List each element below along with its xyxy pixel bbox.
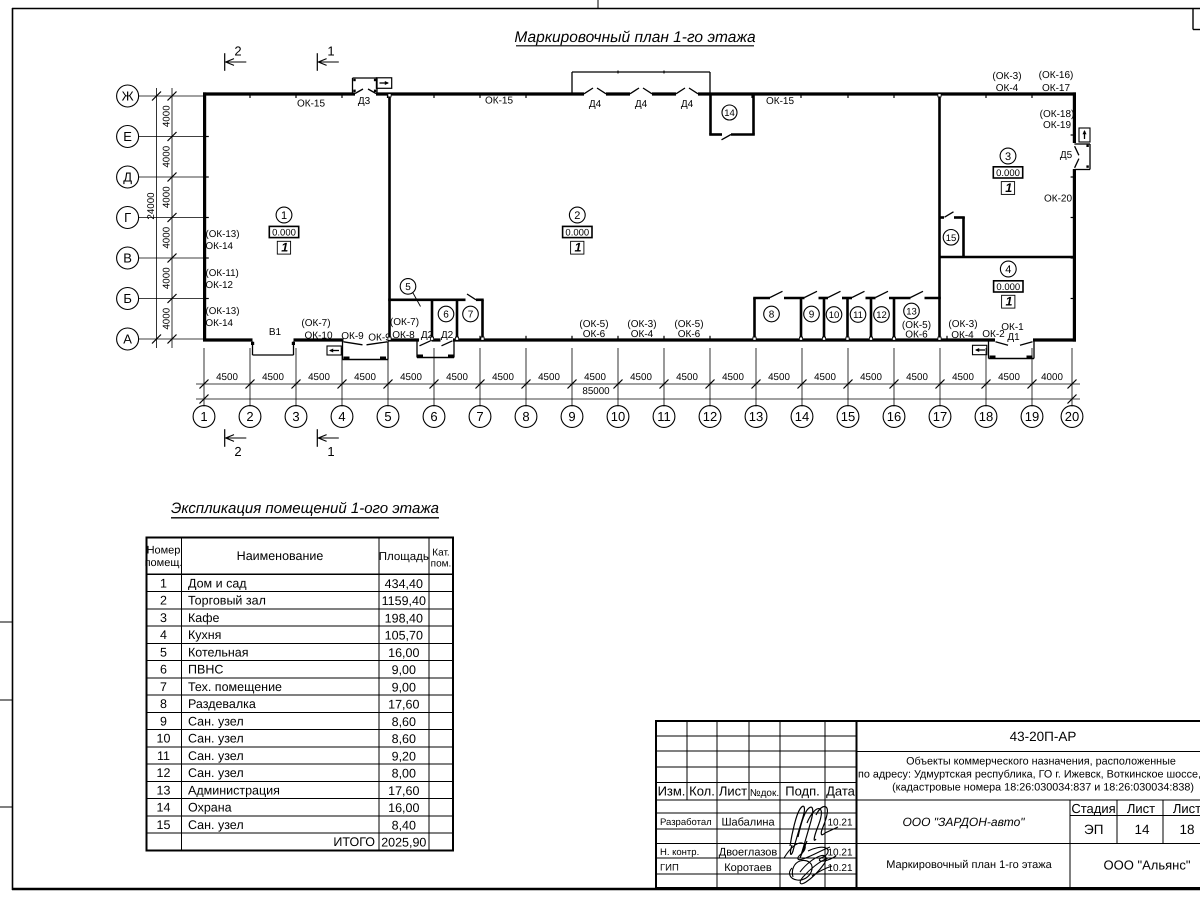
svg-text:9: 9 bbox=[568, 409, 575, 424]
svg-text:15: 15 bbox=[841, 409, 855, 424]
svg-text:7: 7 bbox=[468, 310, 474, 321]
svg-text:Сан. узел: Сан. узел bbox=[188, 732, 244, 746]
svg-text:4500: 4500 bbox=[676, 372, 698, 383]
svg-text:Тех. помещение: Тех. помещение bbox=[188, 680, 282, 694]
svg-text:В: В bbox=[123, 251, 132, 266]
svg-text:(ОК-3): (ОК-3) bbox=[992, 71, 1021, 82]
svg-text:14: 14 bbox=[157, 801, 171, 815]
svg-text:6: 6 bbox=[430, 409, 437, 424]
svg-text:помещ.: помещ. bbox=[145, 557, 183, 569]
svg-text:3: 3 bbox=[160, 611, 167, 625]
svg-text:9: 9 bbox=[160, 714, 167, 728]
svg-text:Д1: Д1 bbox=[1007, 332, 1020, 343]
svg-text:ГИП: ГИП bbox=[660, 863, 679, 874]
svg-text:Е: Е bbox=[123, 129, 132, 144]
svg-text:Изм.: Изм. bbox=[658, 784, 686, 799]
svg-text:13: 13 bbox=[157, 783, 171, 797]
svg-text:Лист: Лист bbox=[719, 784, 747, 799]
svg-text:4500: 4500 bbox=[584, 372, 606, 383]
svg-text:4500: 4500 bbox=[722, 372, 744, 383]
svg-text:ОК-6: ОК-6 bbox=[583, 329, 606, 340]
svg-text:11: 11 bbox=[657, 409, 671, 424]
svg-text:17: 17 bbox=[933, 409, 947, 424]
svg-text:9,00: 9,00 bbox=[392, 663, 416, 677]
svg-text:16,00: 16,00 bbox=[388, 801, 419, 815]
svg-text:4000: 4000 bbox=[162, 145, 173, 167]
svg-text:ОК-19: ОК-19 bbox=[1043, 120, 1071, 131]
svg-text:24000: 24000 bbox=[146, 192, 157, 220]
svg-text:ОК-4: ОК-4 bbox=[631, 329, 654, 340]
svg-text:12: 12 bbox=[157, 766, 171, 780]
svg-text:4000: 4000 bbox=[162, 226, 173, 248]
svg-text:2: 2 bbox=[234, 44, 241, 59]
svg-text:Номер: Номер bbox=[147, 545, 181, 557]
svg-text:(ОК-7): (ОК-7) bbox=[390, 317, 419, 328]
svg-text:4500: 4500 bbox=[906, 372, 928, 383]
svg-text:Б: Б bbox=[123, 291, 132, 306]
svg-text:В1: В1 bbox=[269, 327, 282, 338]
svg-text:2: 2 bbox=[234, 444, 241, 459]
svg-text:Объекты коммерческого назначен: Объекты коммерческого назначения, распол… bbox=[906, 756, 1176, 768]
svg-text:Шабалина: Шабалина bbox=[721, 817, 775, 829]
svg-text:7: 7 bbox=[160, 680, 167, 694]
svg-text:4500: 4500 bbox=[952, 372, 974, 383]
svg-text:10.21: 10.21 bbox=[827, 818, 852, 829]
svg-text:11: 11 bbox=[157, 749, 170, 763]
svg-text:Д3: Д3 bbox=[358, 96, 371, 107]
svg-text:10.21: 10.21 bbox=[827, 863, 852, 874]
svg-text:ОК-8: ОК-8 bbox=[392, 330, 415, 341]
svg-text:10: 10 bbox=[611, 409, 625, 424]
svg-text:Кухня: Кухня bbox=[188, 628, 221, 642]
svg-text:Котельная: Котельная bbox=[188, 645, 249, 659]
svg-text:18: 18 bbox=[979, 409, 993, 424]
svg-text:8,00: 8,00 bbox=[392, 767, 416, 781]
svg-text:18: 18 bbox=[1179, 822, 1194, 837]
svg-text:14: 14 bbox=[724, 108, 735, 119]
svg-text:ОК-17: ОК-17 bbox=[1042, 83, 1070, 94]
svg-text:4500: 4500 bbox=[814, 372, 836, 383]
svg-text:(ОК-11): (ОК-11) bbox=[206, 268, 239, 279]
svg-text:15: 15 bbox=[157, 818, 171, 832]
svg-text:ОК-20: ОК-20 bbox=[1044, 194, 1072, 205]
svg-text:Листов: Листов bbox=[1173, 801, 1200, 816]
svg-text:Стадия: Стадия bbox=[1071, 801, 1115, 816]
svg-text:1: 1 bbox=[281, 241, 288, 255]
svg-text:8: 8 bbox=[160, 697, 167, 711]
svg-text:Двоеглазов: Двоеглазов bbox=[719, 847, 778, 859]
svg-text:5: 5 bbox=[405, 282, 411, 293]
svg-text:(ОК-18): (ОК-18) bbox=[1040, 109, 1075, 120]
svg-text:Д5: Д5 bbox=[1060, 150, 1073, 161]
svg-text:4500: 4500 bbox=[400, 372, 422, 383]
svg-text:19: 19 bbox=[1025, 409, 1039, 424]
svg-text:Раздевалка: Раздевалка bbox=[188, 697, 256, 711]
svg-text:0.000: 0.000 bbox=[996, 282, 1020, 293]
svg-text:4000: 4000 bbox=[162, 267, 173, 289]
svg-text:Администрация: Администрация bbox=[188, 783, 280, 797]
svg-text:4500: 4500 bbox=[768, 372, 790, 383]
svg-text:10.21: 10.21 bbox=[827, 848, 852, 859]
svg-text:2025,90: 2025,90 bbox=[381, 836, 426, 850]
svg-text:1: 1 bbox=[1006, 295, 1013, 309]
svg-text:(кадастровые номера 18:26:0300: (кадастровые номера 18:26:030034:837 и 1… bbox=[892, 782, 1194, 794]
svg-text:8,60: 8,60 bbox=[392, 732, 416, 746]
svg-text:15: 15 bbox=[946, 233, 957, 244]
svg-text:4500: 4500 bbox=[216, 372, 238, 383]
svg-text:Маркировочный план 1-го этажа: Маркировочный план 1-го этажа bbox=[514, 29, 756, 46]
svg-text:6: 6 bbox=[443, 310, 449, 321]
svg-text:ОК-10: ОК-10 bbox=[304, 331, 332, 342]
svg-text:4500: 4500 bbox=[630, 372, 652, 383]
svg-text:4500: 4500 bbox=[998, 372, 1020, 383]
svg-text:Маркировочный план 1-го этажа: Маркировочный план 1-го этажа bbox=[886, 859, 1052, 871]
svg-text:13: 13 bbox=[906, 307, 917, 318]
svg-text:ОК-15: ОК-15 bbox=[485, 96, 513, 107]
svg-text:4500: 4500 bbox=[354, 372, 376, 383]
svg-text:12: 12 bbox=[876, 310, 887, 321]
svg-text:Кат.: Кат. bbox=[432, 548, 449, 559]
svg-text:4500: 4500 bbox=[492, 372, 514, 383]
svg-text:Д4: Д4 bbox=[589, 99, 602, 110]
svg-text:Г: Г bbox=[124, 210, 131, 225]
svg-text:ООО "ЗАРДОН-авто": ООО "ЗАРДОН-авто" bbox=[902, 815, 1025, 829]
svg-text:4500: 4500 bbox=[538, 372, 560, 383]
svg-text:ОК-12: ОК-12 bbox=[206, 280, 234, 291]
svg-text:1: 1 bbox=[575, 241, 582, 255]
svg-text:Сан. узел: Сан. узел bbox=[188, 766, 244, 780]
svg-text:16,00: 16,00 bbox=[388, 646, 419, 660]
svg-text:4500: 4500 bbox=[262, 372, 284, 383]
svg-text:1: 1 bbox=[160, 576, 167, 590]
svg-text:9,00: 9,00 bbox=[392, 680, 416, 694]
svg-text:ОК-14: ОК-14 bbox=[206, 318, 234, 329]
svg-text:4500: 4500 bbox=[446, 372, 468, 383]
svg-text:4000: 4000 bbox=[162, 307, 173, 329]
svg-text:Экспликация помещений 1-ого эт: Экспликация помещений 1-ого этажа bbox=[171, 500, 439, 517]
svg-text:ПВНС: ПВНС bbox=[188, 663, 223, 677]
svg-text:4500: 4500 bbox=[860, 372, 882, 383]
svg-text:8,60: 8,60 bbox=[392, 715, 416, 729]
svg-text:Д4: Д4 bbox=[635, 99, 648, 110]
svg-text:Наименование: Наименование bbox=[237, 549, 324, 563]
svg-text:№док.: №док. bbox=[750, 788, 779, 799]
svg-text:ОК-4: ОК-4 bbox=[951, 330, 974, 341]
svg-text:17,60: 17,60 bbox=[388, 698, 419, 712]
svg-text:198,40: 198,40 bbox=[385, 611, 423, 625]
svg-text:ОК-14: ОК-14 bbox=[206, 241, 234, 252]
svg-text:(ОК-3): (ОК-3) bbox=[948, 319, 977, 330]
svg-text:4: 4 bbox=[338, 409, 345, 424]
svg-text:4500: 4500 bbox=[308, 372, 330, 383]
svg-text:4000: 4000 bbox=[162, 105, 173, 127]
svg-text:13: 13 bbox=[749, 409, 763, 424]
svg-text:14: 14 bbox=[795, 409, 809, 424]
svg-text:Дата: Дата bbox=[826, 784, 856, 799]
svg-text:Кол.: Кол. bbox=[689, 784, 715, 799]
svg-text:4000: 4000 bbox=[162, 186, 173, 208]
svg-text:(ОК-16): (ОК-16) bbox=[1039, 70, 1074, 81]
svg-text:Ж: Ж bbox=[122, 89, 134, 104]
svg-text:ОК-6: ОК-6 bbox=[678, 329, 701, 340]
svg-text:Коротаев: Коротаев bbox=[724, 862, 772, 874]
svg-text:3: 3 bbox=[292, 409, 299, 424]
svg-text:4: 4 bbox=[160, 628, 167, 642]
svg-text:Сан. узел: Сан. узел bbox=[188, 749, 244, 763]
svg-text:2: 2 bbox=[160, 594, 167, 608]
svg-text:ИТОГО: ИТОГО bbox=[333, 835, 375, 849]
svg-text:5: 5 bbox=[384, 409, 391, 424]
svg-text:8: 8 bbox=[769, 310, 775, 321]
svg-text:9,20: 9,20 bbox=[392, 749, 416, 763]
svg-text:14: 14 bbox=[1134, 822, 1150, 837]
svg-text:ЭП: ЭП bbox=[1084, 822, 1103, 837]
svg-text:8: 8 bbox=[522, 409, 529, 424]
svg-text:Д: Д bbox=[123, 170, 132, 185]
svg-text:43-20П-АР: 43-20П-АР bbox=[1010, 729, 1077, 744]
svg-text:ОК-9: ОК-9 bbox=[341, 331, 364, 342]
svg-text:20: 20 bbox=[1065, 409, 1079, 424]
svg-text:85000: 85000 bbox=[582, 386, 610, 397]
svg-text:10: 10 bbox=[829, 310, 840, 321]
svg-text:17,60: 17,60 bbox=[388, 784, 419, 798]
svg-text:ОК-4: ОК-4 bbox=[996, 83, 1019, 94]
svg-text:0.000: 0.000 bbox=[272, 227, 296, 238]
svg-text:Лист: Лист bbox=[1127, 801, 1155, 816]
svg-text:9: 9 bbox=[809, 310, 815, 321]
svg-text:Подп.: Подп. bbox=[785, 784, 820, 799]
svg-text:(ОК-13): (ОК-13) bbox=[206, 229, 240, 240]
svg-text:ОК-15: ОК-15 bbox=[766, 96, 794, 107]
svg-text:7: 7 bbox=[476, 409, 483, 424]
svg-text:Кафе: Кафе bbox=[188, 611, 220, 625]
svg-text:ООО "Альянс": ООО "Альянс" bbox=[1104, 858, 1191, 873]
svg-text:2: 2 bbox=[574, 210, 580, 222]
svg-text:0.000: 0.000 bbox=[565, 227, 589, 238]
svg-text:0.000: 0.000 bbox=[996, 168, 1020, 179]
svg-text:12: 12 bbox=[703, 409, 717, 424]
svg-text:Торговый зал: Торговый зал bbox=[188, 594, 266, 608]
svg-text:1: 1 bbox=[327, 444, 334, 459]
svg-text:Сан. узел: Сан. узел bbox=[188, 818, 244, 832]
svg-text:1: 1 bbox=[200, 409, 207, 424]
svg-text:5: 5 bbox=[160, 645, 167, 659]
svg-text:2: 2 bbox=[246, 409, 253, 424]
svg-text:ОК-6: ОК-6 bbox=[905, 330, 928, 341]
svg-text:1: 1 bbox=[1005, 181, 1012, 195]
svg-text:1: 1 bbox=[281, 210, 287, 222]
svg-text:Площадь: Площадь bbox=[379, 551, 429, 563]
svg-text:по адресу: Удмуртская республи: по адресу: Удмуртская республика, ГО г. … bbox=[858, 769, 1200, 781]
svg-text:10: 10 bbox=[157, 732, 171, 746]
svg-text:434,40: 434,40 bbox=[385, 577, 423, 591]
svg-text:Сан. узел: Сан. узел bbox=[188, 714, 244, 728]
svg-text:4000: 4000 bbox=[1041, 372, 1063, 383]
svg-text:ОК-15: ОК-15 bbox=[297, 99, 325, 110]
svg-text:(ОК-7): (ОК-7) bbox=[301, 318, 330, 329]
svg-text:1159,40: 1159,40 bbox=[382, 594, 426, 608]
svg-text:А: А bbox=[123, 332, 132, 347]
svg-text:8,40: 8,40 bbox=[392, 818, 416, 832]
svg-text:105,70: 105,70 bbox=[385, 629, 423, 643]
svg-text:пом.: пом. bbox=[431, 559, 452, 570]
svg-text:3: 3 bbox=[1005, 151, 1011, 163]
svg-text:Разработал: Разработал bbox=[660, 817, 712, 828]
svg-text:4: 4 bbox=[1005, 264, 1011, 276]
svg-text:Н. контр.: Н. контр. bbox=[660, 847, 699, 858]
svg-text:Д2: Д2 bbox=[441, 330, 454, 341]
svg-text:1: 1 bbox=[327, 44, 334, 59]
svg-text:Д4: Д4 bbox=[681, 99, 694, 110]
svg-text:Дом и сад: Дом и сад bbox=[188, 576, 247, 590]
svg-text:16: 16 bbox=[887, 409, 901, 424]
svg-text:6: 6 bbox=[160, 663, 167, 677]
svg-text:(ОК-13): (ОК-13) bbox=[206, 306, 240, 317]
svg-text:11: 11 bbox=[853, 310, 863, 321]
svg-text:Охрана: Охрана bbox=[188, 801, 232, 815]
